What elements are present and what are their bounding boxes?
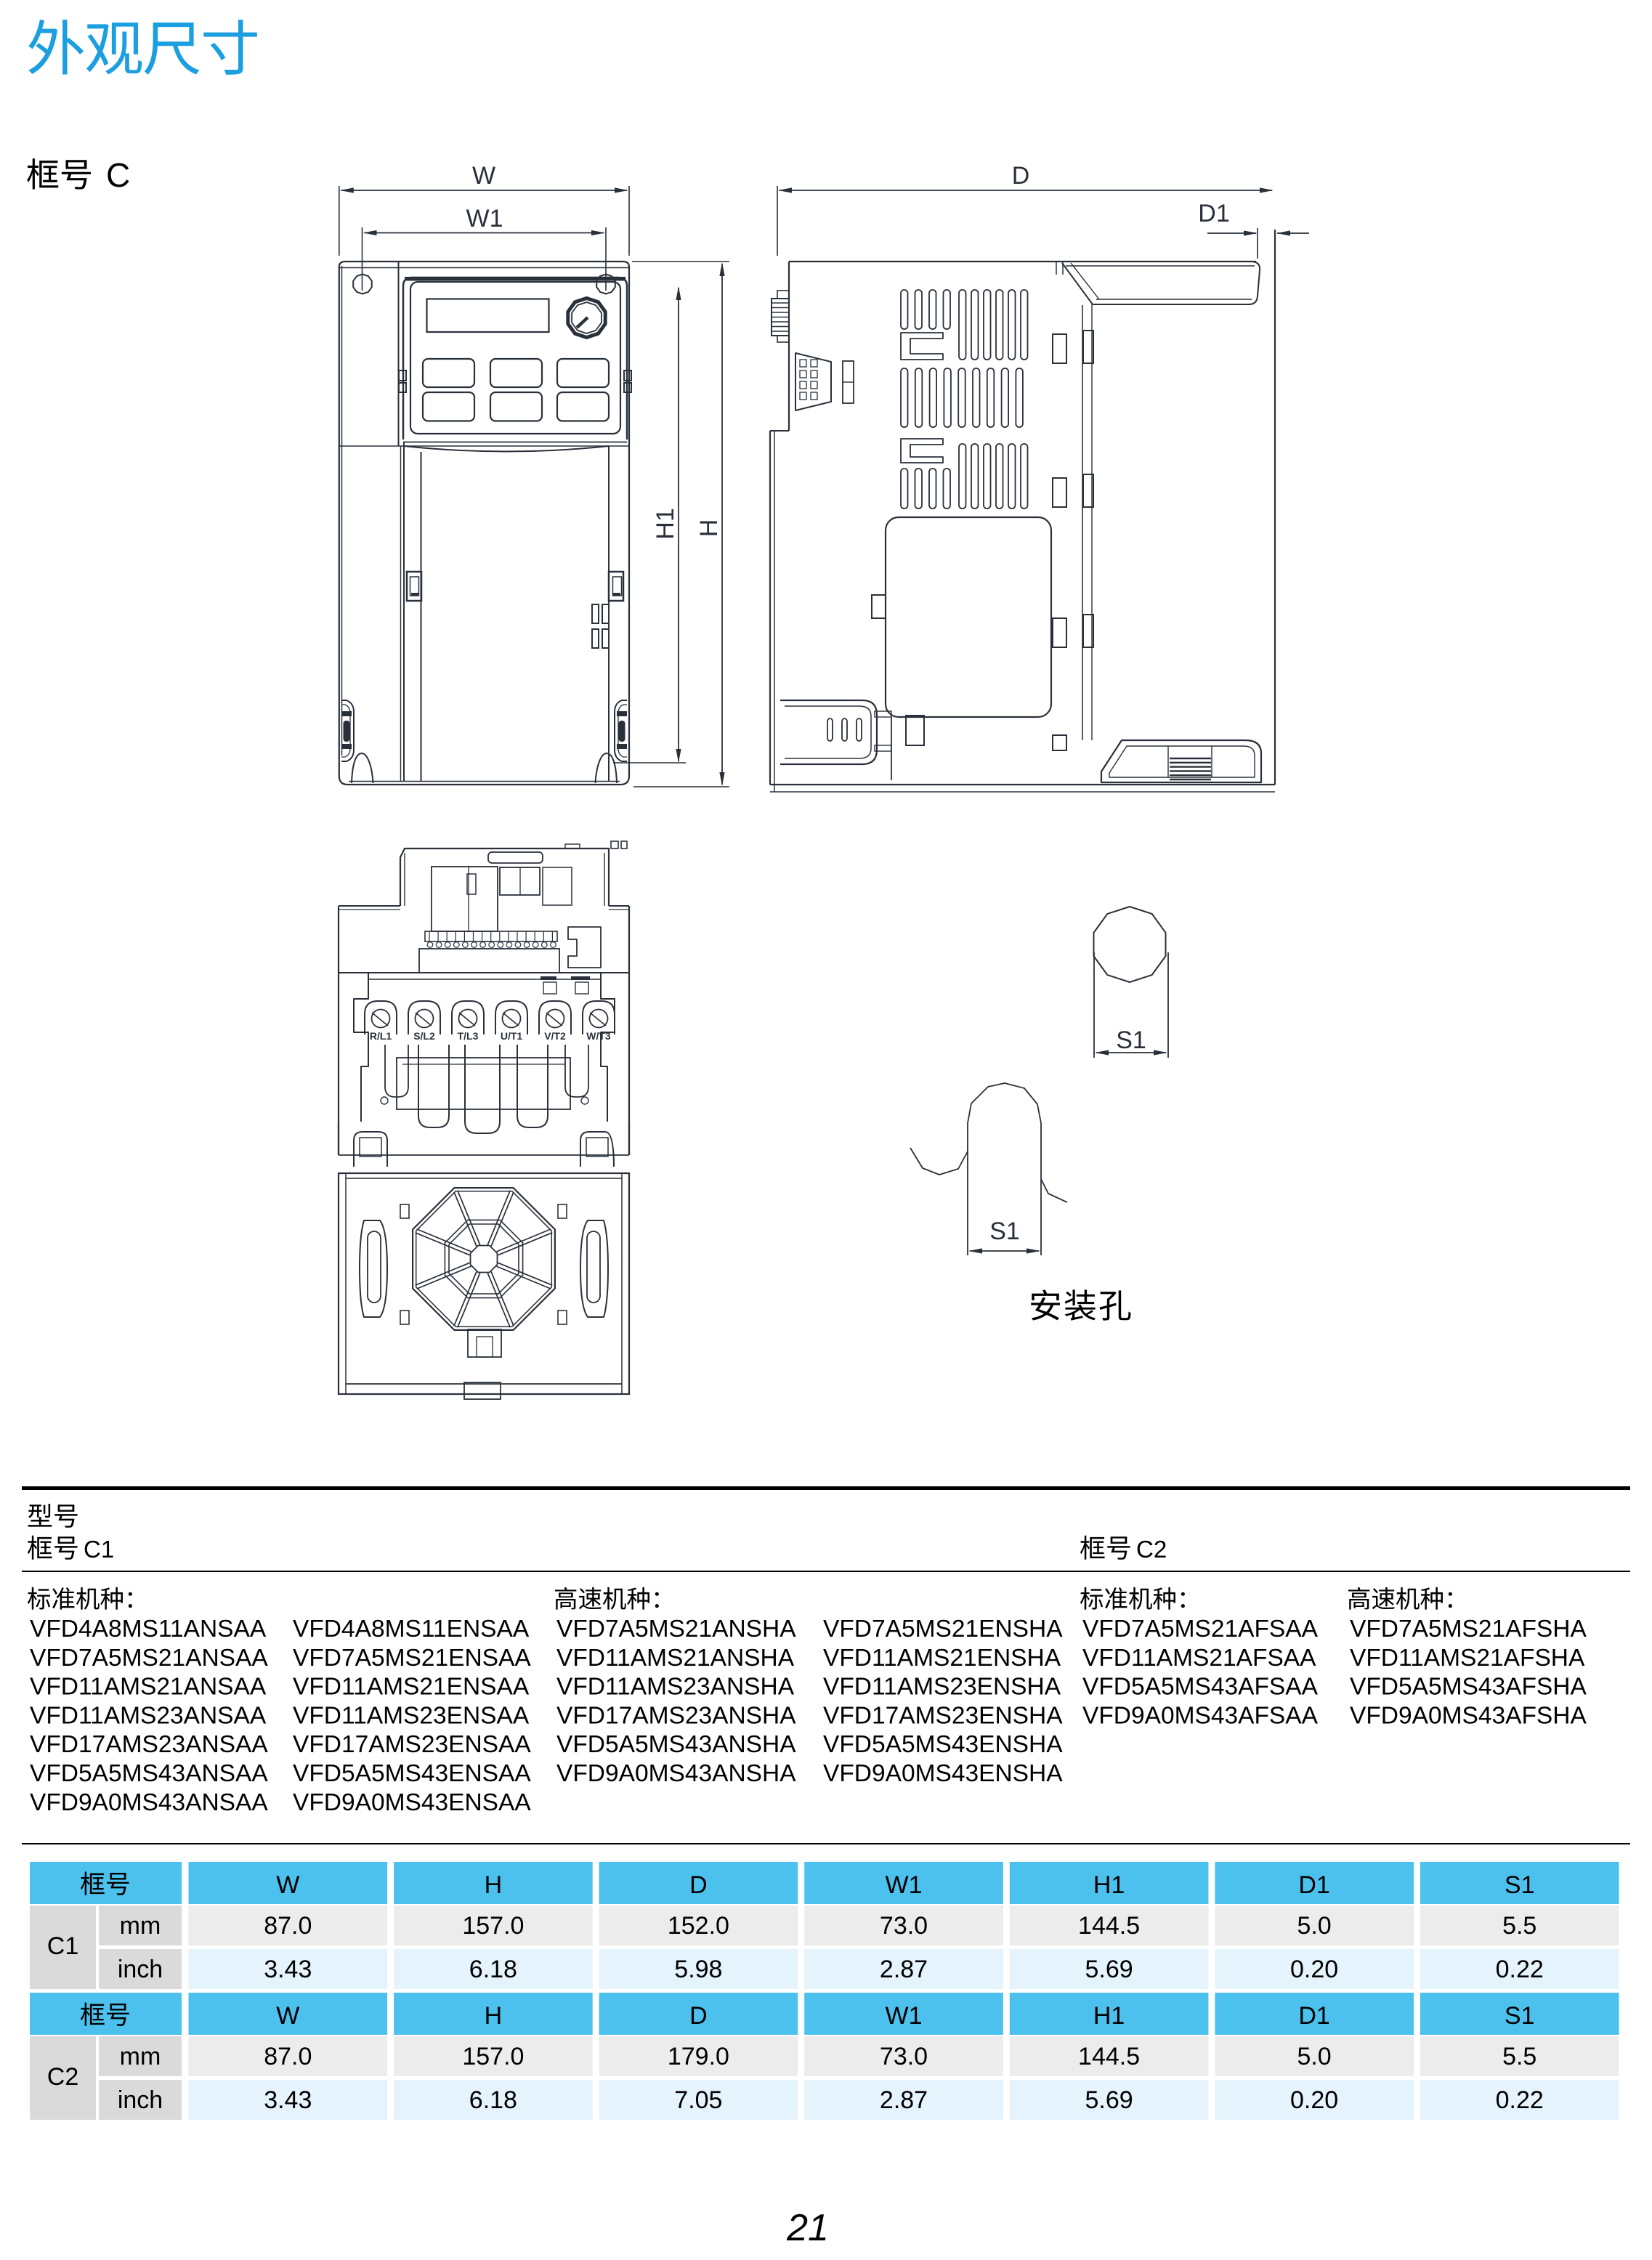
svg-text:VFD17AMS23ENSAA: VFD17AMS23ENSAA	[293, 1731, 531, 1758]
svg-text:VFD11AMS21ANSAA: VFD11AMS21ANSAA	[30, 1674, 267, 1701]
svg-text:157.0: 157.0	[462, 1912, 524, 1940]
svg-text:2.87: 2.87	[880, 2086, 928, 2114]
svg-text:73.0: 73.0	[880, 2043, 928, 2070]
svg-text:S1: S1	[1505, 2002, 1535, 2030]
svg-text:6.18: 6.18	[469, 2086, 517, 2114]
svg-text:VFD11AMS21ANSHA: VFD11AMS21ANSHA	[556, 1645, 795, 1672]
svg-text:VFD7A5MS21AFSAA: VFD7A5MS21AFSAA	[1082, 1616, 1319, 1643]
svg-text:H: H	[695, 519, 723, 538]
svg-text:R/L1: R/L1	[370, 1030, 392, 1042]
svg-text:V/T2: V/T2	[544, 1030, 566, 1042]
svg-text:C2: C2	[47, 2063, 78, 2091]
svg-text:VFD4A8MS11ANSAA: VFD4A8MS11ANSAA	[30, 1616, 267, 1643]
svg-text:S1: S1	[1116, 1026, 1146, 1054]
svg-text:0.22: 0.22	[1496, 2086, 1544, 2114]
svg-text:VFD9A0MS43ENSAA: VFD9A0MS43ENSAA	[293, 1789, 531, 1816]
svg-text:D1: D1	[1298, 2002, 1329, 2030]
svg-text:S/L2: S/L2	[413, 1030, 435, 1042]
svg-text:144.5: 144.5	[1078, 2043, 1140, 2070]
svg-text:0.20: 0.20	[1290, 1956, 1338, 1983]
svg-text:2.87: 2.87	[880, 1956, 928, 1983]
svg-text:179.0: 179.0	[668, 2043, 729, 2070]
svg-text:144.5: 144.5	[1078, 1912, 1140, 1940]
svg-text:H1: H1	[652, 508, 679, 539]
svg-text:5.69: 5.69	[1085, 2086, 1133, 2114]
svg-text:D: D	[689, 2002, 708, 2030]
svg-text:VFD7A5MS21ANSAA: VFD7A5MS21ANSAA	[30, 1645, 268, 1672]
svg-text:S1: S1	[989, 1218, 1020, 1245]
svg-text:W1: W1	[886, 2002, 923, 2030]
svg-text:VFD9A0MS43AFSHA: VFD9A0MS43AFSHA	[1350, 1702, 1587, 1729]
svg-text:C1: C1	[47, 1932, 78, 1960]
svg-text:87.0: 87.0	[264, 1912, 312, 1940]
svg-text:157.0: 157.0	[462, 2043, 524, 2070]
svg-text:D: D	[1012, 162, 1030, 190]
svg-text:5.98: 5.98	[674, 1956, 722, 1983]
svg-text:VFD7A5MS21ENSAA: VFD7A5MS21ENSAA	[293, 1645, 531, 1672]
svg-text:W/T3: W/T3	[586, 1030, 611, 1042]
svg-text:VFD5A5MS43AFSAA: VFD5A5MS43AFSAA	[1082, 1674, 1319, 1701]
svg-text:6.18: 6.18	[469, 1956, 517, 1983]
svg-text:5.0: 5.0	[1297, 1912, 1331, 1940]
svg-text:7.05: 7.05	[674, 2086, 722, 2114]
svg-text:mm: mm	[120, 1912, 161, 1940]
svg-text:W1: W1	[886, 1871, 923, 1899]
svg-text:VFD4A8MS11ENSAA: VFD4A8MS11ENSAA	[293, 1616, 530, 1643]
svg-text:VFD17AMS23ANSHA: VFD17AMS23ANSHA	[556, 1702, 796, 1729]
svg-text:W: W	[276, 2002, 299, 2030]
svg-text:D1: D1	[1198, 200, 1229, 227]
svg-text:0.22: 0.22	[1496, 1956, 1544, 1983]
svg-text:5.5: 5.5	[1502, 2043, 1536, 2070]
svg-text:H1: H1	[1093, 2002, 1125, 2030]
svg-text:W: W	[472, 162, 495, 190]
svg-text:inch: inch	[118, 2086, 163, 2114]
svg-text:VFD5A5MS43ANSAA: VFD5A5MS43ANSAA	[30, 1760, 268, 1787]
svg-text:VFD17AMS23ENSHA: VFD17AMS23ENSHA	[823, 1702, 1063, 1729]
svg-text:H: H	[485, 2002, 503, 2030]
svg-text:VFD7A5MS21AFSHA: VFD7A5MS21AFSHA	[1350, 1616, 1587, 1643]
svg-text:VFD9A0MS43ANSHA: VFD9A0MS43ANSHA	[556, 1760, 796, 1787]
svg-text:U/T1: U/T1	[501, 1030, 523, 1042]
svg-text:D1: D1	[1298, 1871, 1329, 1899]
svg-text:S1: S1	[1505, 1871, 1535, 1899]
svg-text:C1: C1	[84, 1536, 114, 1563]
svg-text:VFD5A5MS43ANSHA: VFD5A5MS43ANSHA	[556, 1731, 796, 1758]
svg-text:VFD7A5MS21ANSHA: VFD7A5MS21ANSHA	[556, 1616, 796, 1643]
svg-text:T/L3: T/L3	[458, 1030, 479, 1042]
svg-text:VFD11AMS23ENSHA: VFD11AMS23ENSHA	[823, 1674, 1061, 1701]
svg-text:5.5: 5.5	[1502, 1912, 1536, 1940]
svg-text:VFD9A0MS43AFSAA: VFD9A0MS43AFSAA	[1082, 1702, 1319, 1729]
svg-text:VFD7A5MS21ENSHA: VFD7A5MS21ENSHA	[823, 1616, 1063, 1643]
svg-text:VFD17AMS23ANSAA: VFD17AMS23ANSAA	[30, 1731, 268, 1758]
svg-text:W1: W1	[466, 205, 503, 232]
svg-text:VFD5A5MS43ENSHA: VFD5A5MS43ENSHA	[823, 1731, 1063, 1758]
svg-text:W: W	[276, 1871, 299, 1899]
svg-text:5.69: 5.69	[1085, 1956, 1133, 1983]
svg-text:VFD9A0MS43ENSHA: VFD9A0MS43ENSHA	[823, 1760, 1063, 1787]
svg-text:VFD5A5MS43AFSHA: VFD5A5MS43AFSHA	[1350, 1674, 1587, 1701]
svg-text:C2: C2	[1136, 1536, 1167, 1563]
svg-text:5.0: 5.0	[1297, 2043, 1331, 2070]
svg-text:0.20: 0.20	[1290, 2086, 1338, 2114]
svg-text:3.43: 3.43	[264, 2086, 312, 2114]
svg-text:C: C	[106, 156, 130, 194]
svg-text:VFD11AMS23ANSAA: VFD11AMS23ANSAA	[30, 1702, 267, 1729]
svg-text:VFD11AMS23ANSHA: VFD11AMS23ANSHA	[556, 1674, 795, 1701]
svg-text:VFD11AMS21AFSAA: VFD11AMS21AFSAA	[1082, 1645, 1316, 1672]
svg-text:inch: inch	[118, 1956, 163, 1983]
svg-text:VFD11AMS23ENSAA: VFD11AMS23ENSAA	[293, 1702, 530, 1729]
svg-text:D: D	[689, 1871, 708, 1899]
svg-text:H1: H1	[1093, 1871, 1125, 1899]
svg-text:VFD5A5MS43ENSAA: VFD5A5MS43ENSAA	[293, 1760, 531, 1787]
svg-text:152.0: 152.0	[668, 1912, 729, 1940]
svg-text:VFD11AMS21AFSHA: VFD11AMS21AFSHA	[1350, 1645, 1585, 1672]
svg-text:H: H	[485, 1871, 503, 1899]
svg-text:87.0: 87.0	[264, 2043, 312, 2070]
svg-text:VFD11AMS21ENSAA: VFD11AMS21ENSAA	[293, 1674, 530, 1701]
svg-text:mm: mm	[120, 2043, 161, 2070]
svg-text:VFD9A0MS43ANSAA: VFD9A0MS43ANSAA	[30, 1789, 268, 1816]
svg-text:VFD11AMS21ENSHA: VFD11AMS21ENSHA	[823, 1645, 1061, 1672]
svg-text:21: 21	[786, 2207, 829, 2249]
svg-text:73.0: 73.0	[880, 1912, 928, 1940]
svg-text:3.43: 3.43	[264, 1956, 312, 1983]
